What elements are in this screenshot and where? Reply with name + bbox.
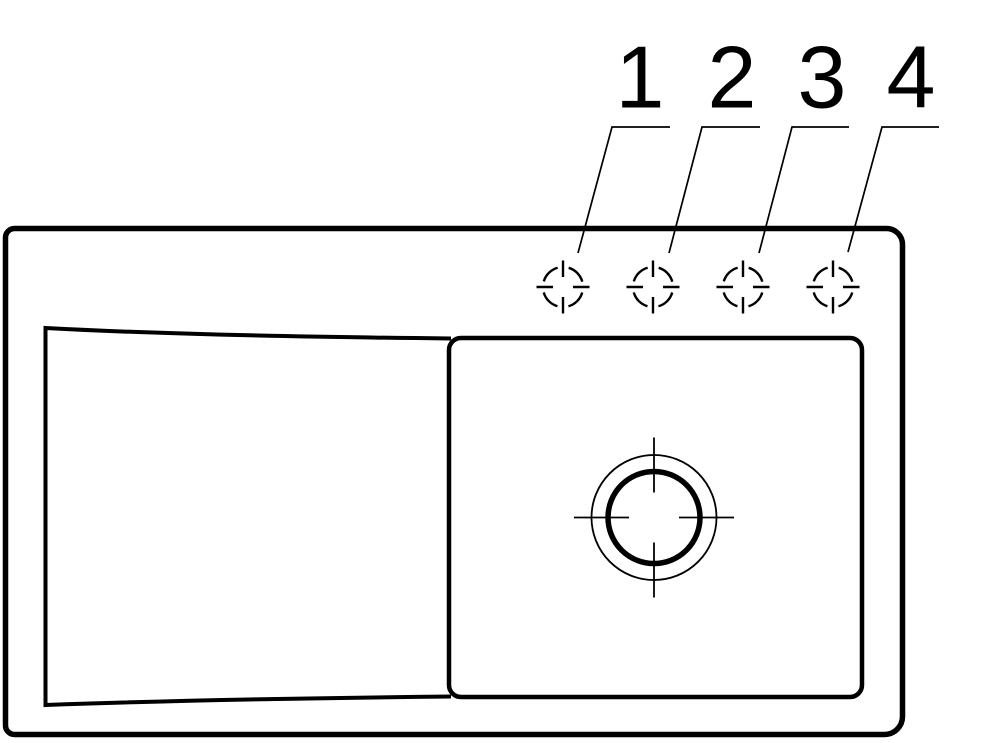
- callout-label-1: 1: [616, 28, 665, 127]
- callout-labels: 1 2 3 4: [616, 28, 936, 127]
- sink-technical-drawing: 1 2 3 4: [0, 0, 992, 743]
- callout-label-2: 2: [708, 28, 757, 127]
- callout-label-4: 4: [887, 28, 936, 127]
- callout-label-3: 3: [798, 28, 847, 127]
- main-bowl: [449, 338, 862, 697]
